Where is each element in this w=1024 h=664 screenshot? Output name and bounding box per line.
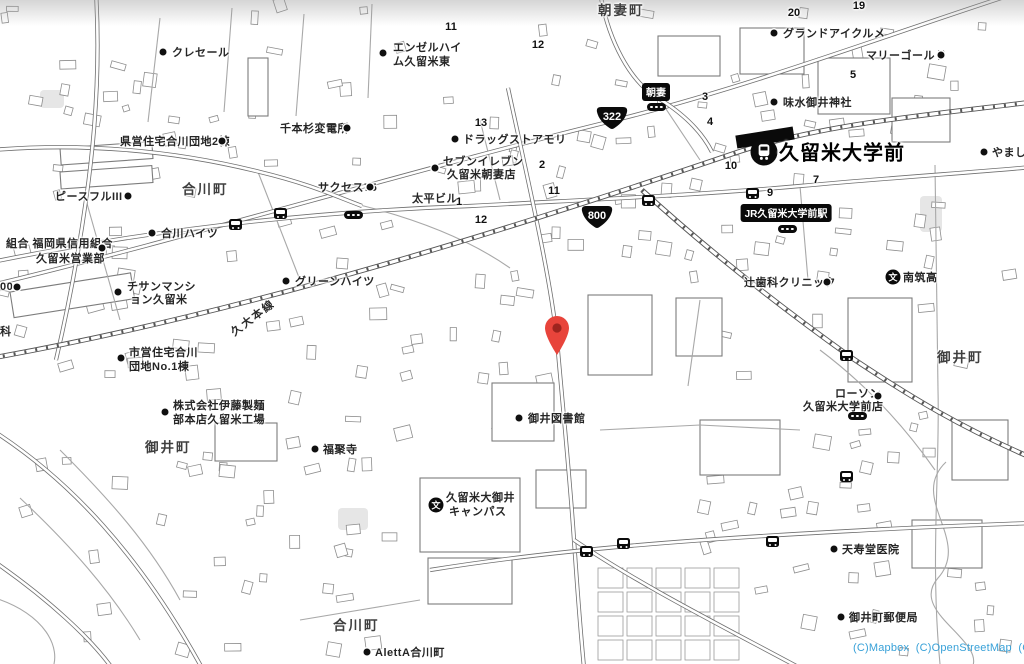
poi-dot <box>125 193 132 200</box>
area-label: 御井町 <box>937 346 984 366</box>
house-number: 10 <box>725 160 737 172</box>
poi-label: ドラッグストアモリ <box>463 131 567 147</box>
house-number: 11 <box>548 185 560 197</box>
poi-dot <box>344 125 351 132</box>
poi-dot <box>838 614 845 621</box>
bus-stop-icon <box>840 471 853 482</box>
house-number: 20 <box>788 7 800 19</box>
poi-dot <box>364 649 371 656</box>
poi-dot <box>938 52 945 59</box>
poi-dot <box>771 30 778 37</box>
poi-label: AlettA合川町 <box>375 644 445 660</box>
poi-dot <box>831 546 838 553</box>
bus-stop-icon <box>274 208 287 219</box>
poi-label: ョン久留米 <box>130 291 188 307</box>
poi-dot <box>149 230 156 237</box>
school-label: キャンパス <box>449 503 507 519</box>
poi-dot <box>14 284 21 291</box>
bus-stop-icon <box>840 350 853 361</box>
area-label: 朝妻町 <box>598 0 645 19</box>
bus-stop-icon <box>642 195 655 206</box>
house-number: 13 <box>475 117 487 129</box>
poi-dot <box>824 279 831 286</box>
location-pin[interactable] <box>542 314 572 356</box>
poi-label: やまし <box>992 144 1024 160</box>
poi-dot <box>312 446 319 453</box>
poi-dot <box>283 278 290 285</box>
train-icon <box>751 139 778 166</box>
poi-dot <box>162 409 169 416</box>
school-icon: 文 <box>886 270 901 285</box>
house-number: 12 <box>532 39 544 51</box>
poi-label: マリーゴールド <box>866 47 947 63</box>
school-icon: 文 <box>429 498 444 513</box>
poi-dot <box>981 149 988 156</box>
poi-dot <box>771 99 778 106</box>
poi-label: 科 <box>0 323 12 339</box>
poi-dot <box>432 165 439 172</box>
house-number: 4 <box>707 116 713 128</box>
poi-label: 県営住宅合川団地2棟 <box>120 133 230 149</box>
poi-label: 組合 福岡県信用組合 <box>6 235 113 251</box>
poi-dot <box>219 138 226 145</box>
poi-label: 御井図書館 <box>528 410 586 426</box>
bus-stop-icon <box>746 188 759 199</box>
poi-label: 辻歯科クリニック <box>744 274 836 290</box>
bus-stop-icon <box>766 536 779 547</box>
poi-dot <box>516 415 523 422</box>
house-number: 9 <box>767 187 773 199</box>
poi-dot <box>380 50 387 57</box>
poi-label: 千本杉変電所 <box>280 120 349 136</box>
bus-stop-icon <box>229 219 242 230</box>
poi-label: 久留米朝妻店 <box>447 166 516 182</box>
house-number: 7 <box>813 174 819 186</box>
house-number: 2 <box>539 159 545 171</box>
svg-text:800: 800 <box>588 210 606 222</box>
house-number: 11 <box>445 21 457 33</box>
route-shield: 322 <box>596 106 628 132</box>
poi-label: 00 <box>0 281 13 293</box>
poi-label: 合川ハイツ <box>161 225 218 241</box>
poi-label: 天寿堂医院 <box>842 541 900 557</box>
map-roads-and-buildings <box>0 0 1024 664</box>
bus-stop-icon <box>617 538 630 549</box>
poi-dot <box>160 49 167 56</box>
station-badge: 朝妻 <box>642 83 670 101</box>
bus-stop-dots-icon <box>344 211 363 219</box>
poi-label: 味水御井神社 <box>783 94 852 110</box>
poi-dot <box>875 393 882 400</box>
bus-stop-dots-icon <box>848 412 867 420</box>
poi-label: クレセール <box>172 44 230 60</box>
poi-dot <box>115 289 122 296</box>
bus-stop-dots-icon <box>647 103 666 111</box>
poi-label: ピースフルIII <box>55 188 123 204</box>
bus-stop-icon <box>580 546 593 557</box>
poi-label: グランドアイクルメ <box>783 25 885 41</box>
map-canvas[interactable]: (C)Mapbox (C)OpenStreetMap (C)LY 朝妻町合川町御… <box>0 0 1024 664</box>
area-label: 合川町 <box>333 614 380 634</box>
area-label: 御井町 <box>145 436 192 456</box>
svg-text:322: 322 <box>603 111 621 123</box>
poi-dot <box>99 245 106 252</box>
house-number: 1 <box>456 196 462 208</box>
poi-dot <box>367 184 374 191</box>
station-badge: JR久留米大学前駅 <box>741 204 832 222</box>
poi-label: 久留米営業部 <box>36 250 105 266</box>
map-attribution[interactable]: (C)Mapbox (C)OpenStreetMap (C)LY <box>853 642 1024 654</box>
area-label: 合川町 <box>182 178 229 198</box>
bus-stop-dots-icon <box>778 225 797 233</box>
route-shield: 800 <box>581 205 613 231</box>
house-number: 12 <box>475 214 487 226</box>
poi-dot <box>118 355 125 362</box>
poi-label: 団地No.1棟 <box>129 358 189 374</box>
poi-label: ム久留米東 <box>393 53 451 69</box>
house-number: 19 <box>853 0 865 12</box>
school-label: 南筑高 <box>903 269 938 285</box>
poi-label: 御井町郵便局 <box>849 609 918 625</box>
poi-label: 太平ビル <box>412 190 458 206</box>
poi-dot <box>452 136 459 143</box>
poi-label: グリーンハイツ <box>295 273 375 289</box>
house-number: 5 <box>850 69 856 81</box>
poi-label: 福聚寺 <box>323 441 358 457</box>
poi-label: 部本店久留米工場 <box>173 411 265 427</box>
station-name-label: 久留米大学前 <box>779 137 905 166</box>
poi-label: 久留米大学前店 <box>803 398 884 414</box>
house-number: 3 <box>702 91 708 103</box>
